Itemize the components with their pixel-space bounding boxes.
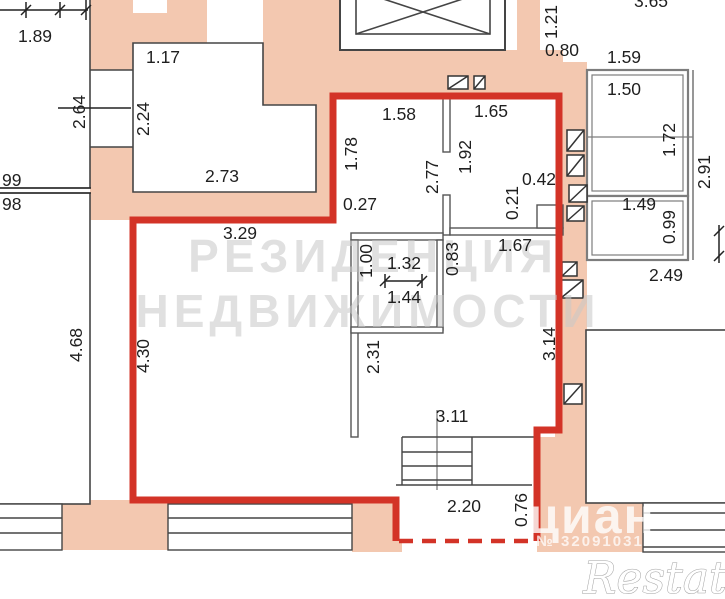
dimension-label: 1.78: [341, 137, 361, 171]
dimension-label: 3.14: [539, 327, 559, 361]
dimension-label: 2.64: [69, 95, 89, 129]
dimension-label: 2.24: [133, 102, 153, 136]
dimension-label: 1.92: [455, 140, 475, 174]
elevator-shaft: [340, 0, 505, 50]
vent-shaft-icon: [567, 206, 584, 221]
dimension-label: 2.73: [205, 166, 239, 186]
restate-watermark: Restate: [582, 553, 725, 599]
vent-shaft-icon: [567, 130, 584, 151]
cian-listing-id: № 32091031: [536, 533, 644, 550]
stairwell-corridor: [586, 330, 725, 503]
dimension-label: 1.50: [607, 79, 641, 99]
floor-plan-canvas: РЕЗИДЕНЦИЯ НЕДВИЖИМОСТИ циан № 32091031 …: [0, 0, 725, 599]
dimension-label: 99: [2, 170, 21, 190]
dimension-label: 2.91: [694, 155, 714, 189]
vent-shaft-icon: [564, 384, 582, 404]
dimension-label: 1.89: [18, 26, 52, 46]
dimension-label: 3.29: [223, 223, 257, 243]
dimension-label: 2.31: [363, 340, 383, 374]
floor-plan-screenshot: РЕЗИДЕНЦИЯ НЕДВИЖИМОСТИ циан № 32091031 …: [0, 0, 725, 599]
vent-shaft-icon: [567, 155, 584, 176]
dimension-label: 1.65: [474, 101, 508, 121]
dimension-label: 4.68: [66, 328, 86, 362]
dimension-label: 0.76: [511, 493, 531, 527]
facade-windows: [0, 504, 352, 550]
dimension-label: 1.32: [387, 253, 421, 273]
dimension-label: 4.30: [133, 339, 153, 373]
vent-shaft-icon: [562, 262, 577, 276]
dimension-label: 3.65: [634, 0, 668, 11]
dimension-label: 1.44: [387, 287, 421, 307]
dimension-label: 1.67: [498, 235, 532, 255]
dimension-label: 1.59: [607, 47, 641, 67]
dimension-label: 1.72: [659, 123, 679, 157]
vent-shaft-icon: [448, 76, 468, 89]
dimension-label: 98: [2, 194, 21, 214]
dimension-label: 0.42: [522, 169, 556, 189]
vent-shaft-icon: [569, 185, 587, 202]
dimension-label: 2.77: [422, 160, 442, 194]
watermark-line2: НЕДВИЖИМОСТИ: [136, 285, 601, 337]
dimension-label: 1.21: [541, 5, 561, 39]
dimension-label: 3.11: [436, 406, 469, 426]
dimension-label: 0.27: [343, 194, 377, 214]
dimension-label: 2.20: [447, 496, 481, 516]
dimension-label: 0.80: [545, 40, 579, 60]
dimension-label: 0.83: [442, 242, 462, 276]
dimension-label: 1.00: [356, 244, 376, 278]
vent-shaft-icon: [474, 76, 485, 89]
dimension-label: 1.17: [146, 47, 180, 67]
dimension-label: 1.58: [382, 104, 416, 124]
dimension-label: 0.21: [502, 186, 522, 220]
dimension-label: 0.99: [659, 210, 679, 244]
dimension-label: 2.49: [649, 265, 683, 285]
dimension-label: 1.49: [622, 194, 656, 214]
